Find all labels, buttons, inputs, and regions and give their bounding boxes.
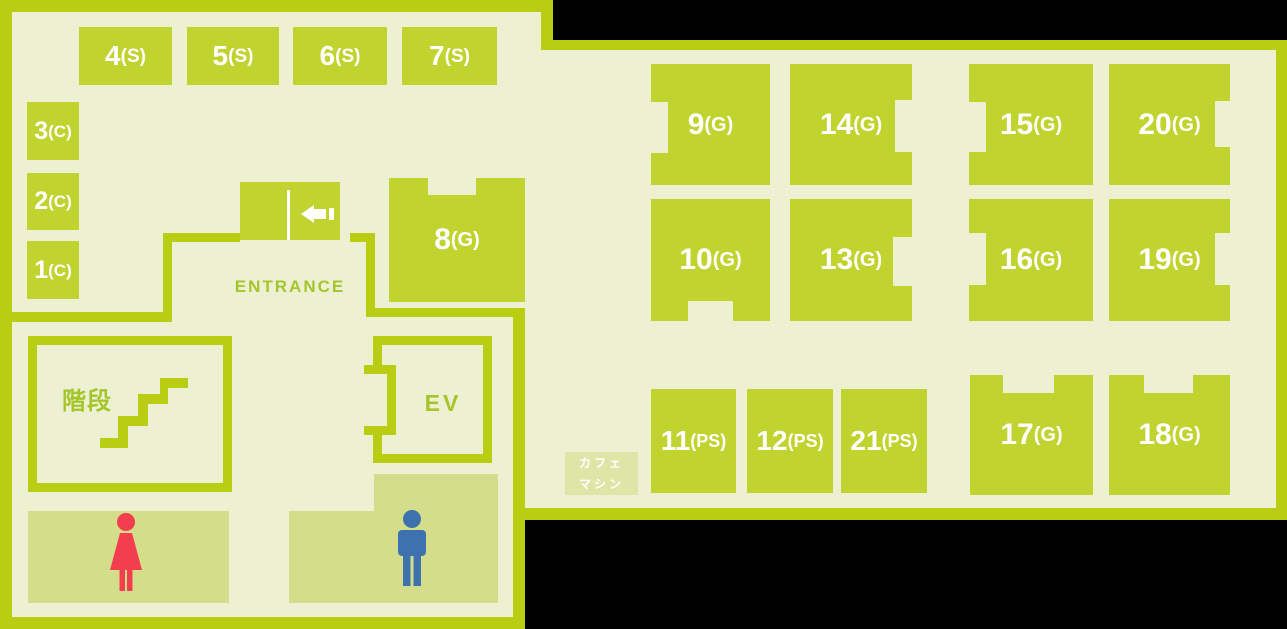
wall-bottom-right-block	[513, 508, 1287, 520]
room-suffix: (G)	[451, 230, 480, 250]
wall-right	[1276, 40, 1287, 520]
room-18g: 18(G)	[1109, 375, 1230, 495]
man-icon	[392, 510, 432, 596]
room-number: 18	[1138, 420, 1171, 450]
room-suffix: (C)	[48, 262, 72, 279]
room-suffix: (G)	[1033, 250, 1062, 270]
entrance-label: ENTRANCE	[210, 277, 370, 297]
room-number: 21	[850, 427, 881, 455]
room-number: 1	[34, 258, 48, 283]
room-suffix: (G)	[1172, 115, 1201, 135]
elevator-door-notch	[364, 365, 396, 435]
room-number: 4	[105, 42, 121, 70]
room-10g-door-notch	[688, 301, 733, 321]
room-suffix: (G)	[853, 115, 882, 135]
room-8g-door-notch	[428, 178, 476, 195]
entrance-door	[240, 182, 340, 240]
room-suffix: (G)	[704, 115, 733, 135]
room-16g: 16(G)	[969, 199, 1093, 321]
room-number: 5	[213, 42, 229, 70]
room-number: 7	[429, 42, 445, 70]
room-number: 13	[820, 245, 853, 275]
room-suffix: (G)	[1033, 115, 1062, 135]
room-number: 12	[756, 427, 787, 455]
room-number: 8	[434, 225, 451, 255]
room-suffix: (PS)	[690, 432, 726, 450]
room-7s: 7(S)	[402, 27, 497, 85]
room-suffix: (G)	[853, 250, 882, 270]
room-number: 19	[1138, 245, 1171, 275]
room-15g-door-notch	[969, 102, 986, 152]
wall-top-left-block	[0, 0, 553, 12]
room-11ps: 11(PS)	[651, 389, 736, 493]
room-suffix: (PS)	[788, 432, 824, 450]
room-number: 16	[1000, 245, 1033, 275]
room-13g: 13(G)	[790, 199, 912, 321]
mens-restroom-upper	[374, 474, 498, 511]
floor-plan: ENTRANCE 3(C) 2(C) 1(C) 4(S) 5(S) 6(S) 7…	[0, 0, 1287, 629]
room-20g-door-notch	[1215, 101, 1230, 147]
room-18g-door-notch	[1144, 375, 1193, 393]
room-suffix: (G)	[713, 250, 742, 270]
door-divider	[287, 190, 290, 240]
room-number: 3	[34, 119, 48, 144]
room-14g: 14(G)	[790, 64, 912, 185]
room-17g: 17(G)	[970, 375, 1093, 495]
room-number: 10	[679, 245, 712, 275]
wall-corridor-top-left	[163, 233, 240, 242]
room-1c: 1(C)	[27, 241, 79, 299]
room-suffix: (PS)	[882, 432, 918, 450]
room-8g: 8(G)	[389, 178, 525, 302]
room-19g-door-notch	[1215, 233, 1230, 285]
room-5s: 5(S)	[187, 27, 279, 85]
elevator-label: EV	[403, 390, 483, 417]
wall-corridor-bottom-right	[366, 308, 525, 317]
wall-top-right-block	[541, 40, 1287, 50]
room-19g: 19(G)	[1109, 199, 1230, 321]
room-12ps: 12(PS)	[747, 389, 833, 493]
wall-corridor-left-vertical	[163, 233, 172, 322]
room-14g-door-notch	[895, 100, 912, 152]
wall-left	[0, 0, 12, 629]
room-4s: 4(S)	[79, 27, 172, 85]
room-21ps: 21(PS)	[841, 389, 927, 493]
room-17g-door-notch	[1003, 375, 1054, 393]
room-15g: 15(G)	[969, 64, 1093, 185]
cafe-machine-label-line1: カフェ	[579, 453, 624, 473]
room-suffix: (S)	[121, 47, 146, 66]
wall-bottom-left-block	[0, 617, 525, 629]
cafe-machine-label-line2: マシン	[579, 474, 624, 494]
room-number: 20	[1138, 110, 1171, 140]
room-number: 2	[34, 189, 48, 214]
room-number: 15	[1000, 110, 1033, 140]
room-3c: 3(C)	[27, 102, 79, 160]
room-9g: 9(G)	[651, 64, 770, 185]
room-suffix: (G)	[1034, 425, 1063, 445]
wall-mid-vertical	[513, 308, 525, 629]
room-suffix: (S)	[445, 47, 470, 66]
room-suffix: (C)	[48, 193, 72, 210]
room-2c: 2(C)	[27, 173, 79, 230]
cafe-machine-area: カフェ マシン	[565, 452, 638, 495]
room-number: 17	[1000, 420, 1033, 450]
room-suffix: (S)	[228, 47, 253, 66]
room-number: 9	[688, 110, 705, 140]
room-6s: 6(S)	[293, 27, 387, 85]
wall-corridor-left-horizontal	[12, 312, 172, 322]
room-number: 6	[320, 42, 336, 70]
stairs-icon	[100, 378, 188, 448]
room-13g-door-notch	[893, 237, 912, 286]
room-suffix: (C)	[48, 123, 72, 140]
room-suffix: (G)	[1172, 250, 1201, 270]
woman-icon	[104, 513, 148, 599]
wall-corridor-right-vertical	[366, 233, 375, 317]
room-16g-door-notch	[969, 233, 986, 285]
room-10g: 10(G)	[651, 199, 770, 321]
room-suffix: (G)	[1172, 425, 1201, 445]
room-number: 11	[661, 427, 691, 455]
room-number: 14	[820, 110, 853, 140]
room-9g-door-notch	[651, 102, 668, 153]
left-arrow-icon	[301, 205, 335, 223]
room-suffix: (S)	[335, 47, 360, 66]
room-20g: 20(G)	[1109, 64, 1230, 185]
